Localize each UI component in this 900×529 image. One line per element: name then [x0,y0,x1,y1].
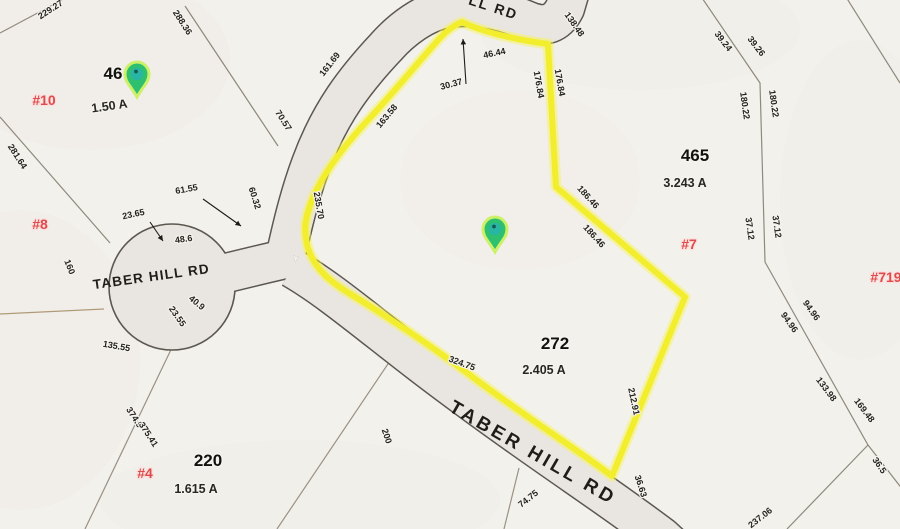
parcel-number-465: 465 [681,146,709,165]
parcel-acreage-220: 1.615 A [174,482,217,496]
site-label-4: #4 [137,465,153,481]
site-label-719: #719 [870,269,900,285]
site-label-7: #7 [681,236,697,252]
plat-map-canvas: LL RD TABER HILL RD TABER HILL RD 229.27… [0,0,900,529]
site-label-8: #8 [32,216,48,232]
parcel-acreage-465: 3.243 A [663,176,706,190]
site-label-10: #10 [32,92,56,108]
parcel-number-272: 272 [541,334,569,353]
parcel-number-46: 46 [104,64,123,83]
plat-map: LL RD TABER HILL RD TABER HILL RD 229.27… [0,0,900,529]
parcel-number-220: 220 [194,451,222,470]
parcel-acreage-272: 2.405 A [522,363,565,377]
